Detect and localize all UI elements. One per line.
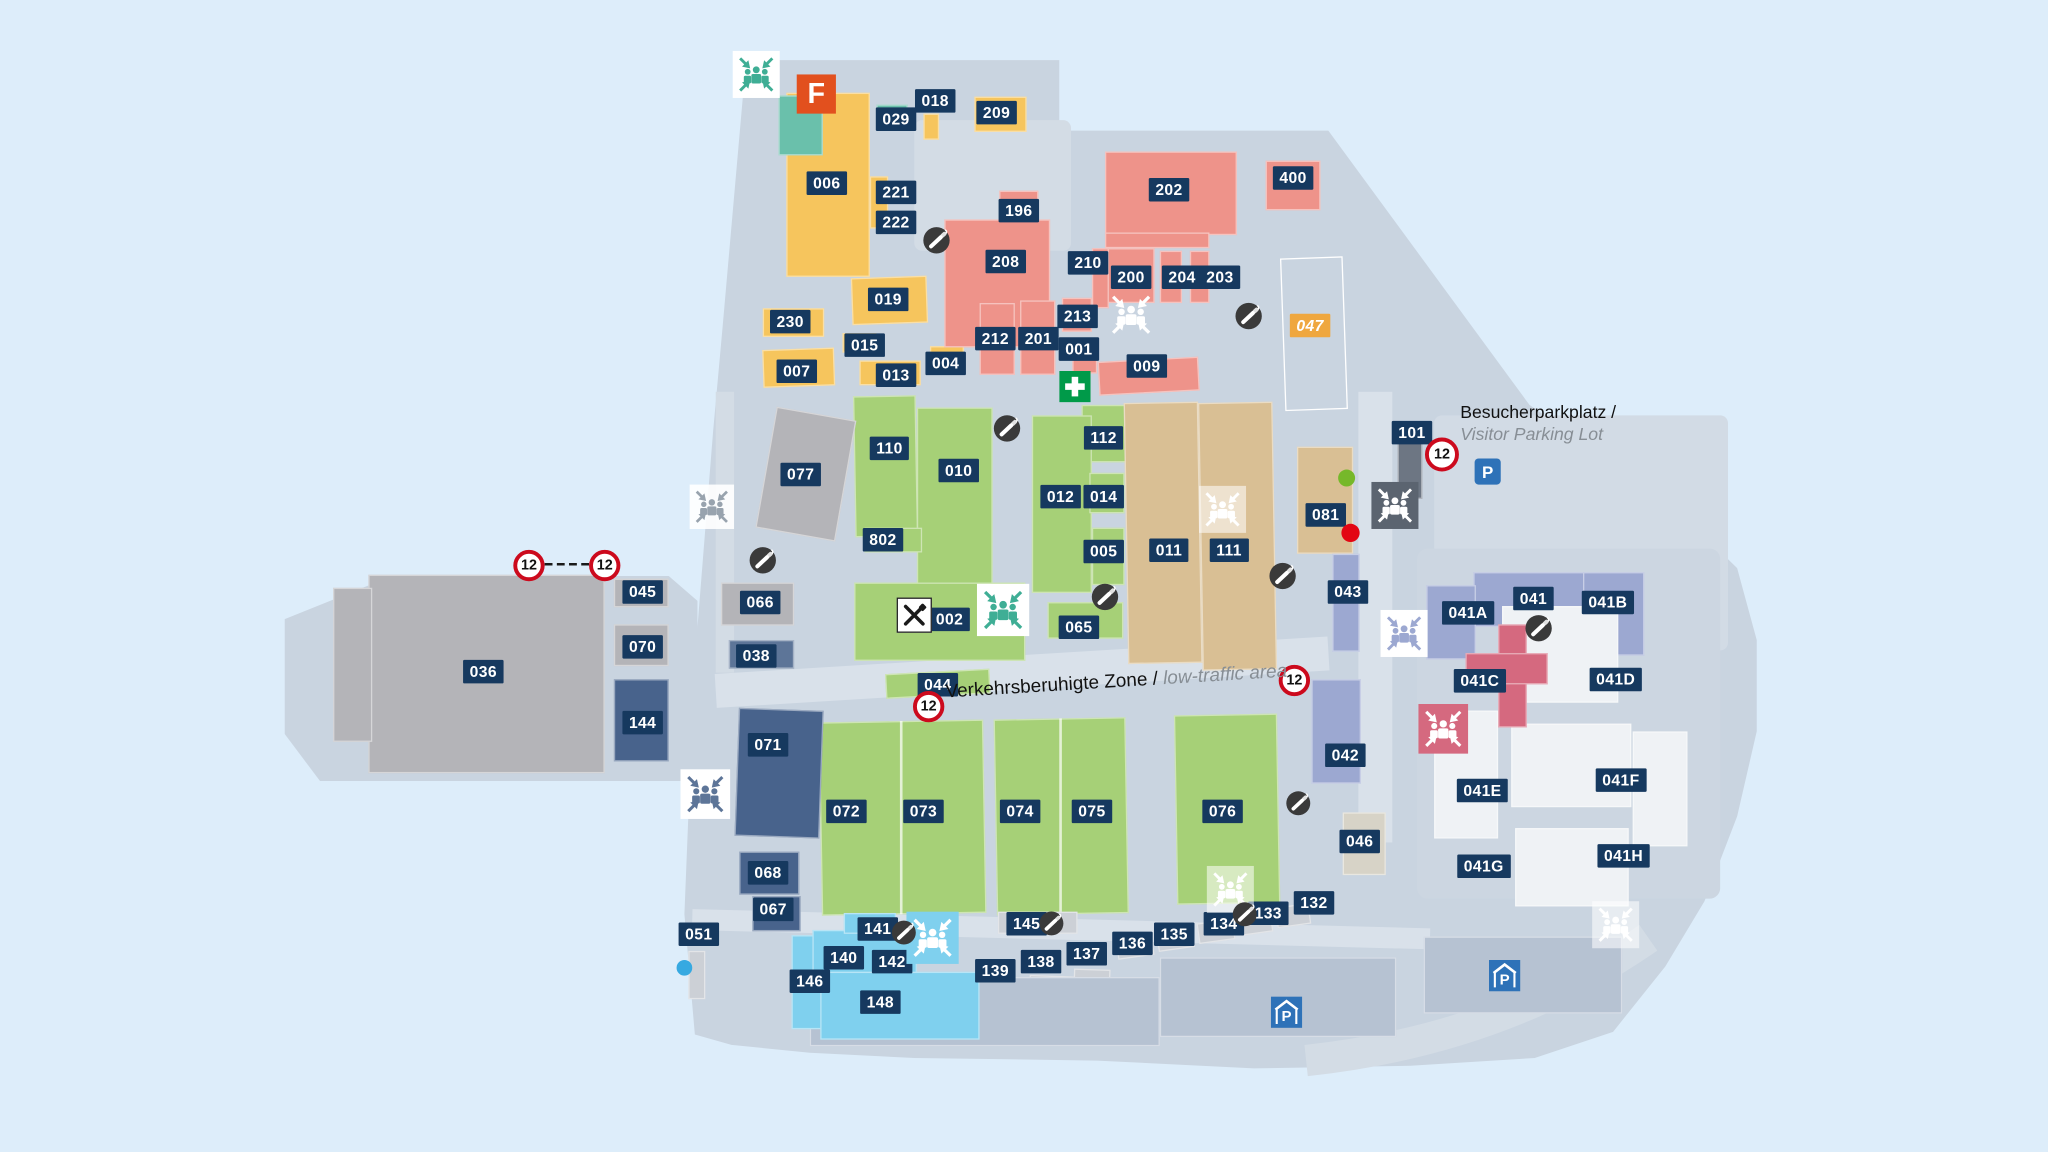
parking-garage-icon: P xyxy=(1489,960,1520,991)
smoking-area-icon xyxy=(1268,562,1297,591)
visitor-parking-annotation: Besucherparkplatz / Visitor Parking Lot xyxy=(1460,402,1616,446)
building-label-041H[interactable]: 041H xyxy=(1597,844,1649,867)
building-label-204[interactable]: 204 xyxy=(1162,265,1202,288)
building-label-802[interactable]: 802 xyxy=(863,528,903,551)
visitor-parking-text-de: Besucherparkplatz / xyxy=(1460,402,1616,424)
building-label-140[interactable]: 140 xyxy=(824,946,864,969)
map-building xyxy=(734,708,823,839)
building-label-075[interactable]: 075 xyxy=(1072,800,1112,823)
smoking-area-icon xyxy=(993,414,1022,443)
building-label-019[interactable]: 019 xyxy=(868,288,908,311)
meeting-point-icon xyxy=(690,485,734,529)
site-map-canvas[interactable]: 0060180292092212221962024002082102002042… xyxy=(0,0,2048,1152)
building-label-066[interactable]: 066 xyxy=(740,591,780,614)
building-label-213[interactable]: 213 xyxy=(1057,305,1097,328)
meeting-point-icon xyxy=(1381,610,1428,657)
building-label-013[interactable]: 013 xyxy=(876,363,916,386)
building-label-212[interactable]: 212 xyxy=(975,327,1015,350)
building-label-007[interactable]: 007 xyxy=(777,360,817,383)
meeting-point-icon xyxy=(733,51,780,98)
smoking-area-icon xyxy=(1234,302,1263,331)
building-label-009[interactable]: 009 xyxy=(1127,354,1167,377)
speed-limit-12-sign: 12 xyxy=(1425,438,1459,472)
building-label-041A[interactable]: 041A xyxy=(1442,601,1494,624)
building-label-041F[interactable]: 041F xyxy=(1596,768,1646,791)
building-label-065[interactable]: 065 xyxy=(1059,616,1099,639)
building-label-111[interactable]: 111 xyxy=(1210,538,1249,561)
green-marker-dot xyxy=(1338,470,1355,487)
building-label-208[interactable]: 208 xyxy=(986,250,1026,273)
svg-text:P: P xyxy=(1282,1008,1292,1025)
building-label-076[interactable]: 076 xyxy=(1202,800,1242,823)
building-label-210[interactable]: 210 xyxy=(1068,251,1108,274)
building-label-051[interactable]: 051 xyxy=(679,922,719,945)
map-building xyxy=(853,395,918,537)
building-label-015[interactable]: 015 xyxy=(844,333,884,356)
building-label-132[interactable]: 132 xyxy=(1294,891,1334,914)
smoking-area-icon xyxy=(1038,910,1064,936)
building-label-221[interactable]: 221 xyxy=(876,181,916,204)
blue-marker-dot xyxy=(677,960,693,976)
building-label-036[interactable]: 036 xyxy=(463,660,503,683)
building-label-018[interactable]: 018 xyxy=(915,89,955,112)
map-building xyxy=(917,408,993,586)
meeting-point-icon xyxy=(1592,901,1639,948)
building-label-196[interactable]: 196 xyxy=(999,199,1039,222)
building-label-203[interactable]: 203 xyxy=(1200,265,1240,288)
building-label-400[interactable]: 400 xyxy=(1273,166,1313,189)
building-label-074[interactable]: 074 xyxy=(1000,800,1040,823)
building-label-012[interactable]: 012 xyxy=(1040,485,1080,508)
parking-garage-icon: P xyxy=(1271,997,1302,1028)
building-label-002[interactable]: 002 xyxy=(929,608,969,631)
building-label-209[interactable]: 209 xyxy=(976,101,1016,124)
building-label-072[interactable]: 072 xyxy=(826,800,866,823)
speed-limit-12-sign: 12 xyxy=(589,550,620,581)
svg-text:P: P xyxy=(1500,971,1510,988)
visitor-parking-text-en: Visitor Parking Lot xyxy=(1460,424,1616,446)
building-label-041D[interactable]: 041D xyxy=(1590,668,1642,691)
building-label-146[interactable]: 146 xyxy=(790,969,830,992)
speed-limit-12-sign: 12 xyxy=(513,550,544,581)
building-label-071[interactable]: 071 xyxy=(748,733,788,756)
building-label-045[interactable]: 045 xyxy=(622,580,662,603)
building-label-014[interactable]: 014 xyxy=(1083,485,1123,508)
building-label-135[interactable]: 135 xyxy=(1154,922,1194,945)
smoking-area-icon xyxy=(891,920,917,946)
building-label-068[interactable]: 068 xyxy=(748,861,788,884)
building-label-230[interactable]: 230 xyxy=(770,310,810,333)
building-label-005[interactable]: 005 xyxy=(1083,540,1123,563)
meeting-point-icon xyxy=(1371,482,1418,529)
building-label-004[interactable]: 004 xyxy=(925,352,965,375)
map-building xyxy=(1511,724,1631,808)
map-building xyxy=(688,951,705,999)
parking-sign-icon: P xyxy=(1475,458,1501,484)
building-label-011[interactable]: 011 xyxy=(1149,538,1189,561)
map-building xyxy=(1311,679,1361,783)
building-label-148[interactable]: 148 xyxy=(860,990,900,1013)
smoking-area-icon xyxy=(1285,790,1311,816)
building-label-067[interactable]: 067 xyxy=(753,898,793,921)
map-building xyxy=(900,721,903,914)
map-building xyxy=(1124,402,1203,664)
building-label-038[interactable]: 038 xyxy=(736,644,776,667)
building-label-110[interactable]: 110 xyxy=(870,437,910,460)
building-label-043[interactable]: 043 xyxy=(1328,580,1368,603)
building-label-041[interactable]: 041 xyxy=(1513,587,1553,610)
building-label-144[interactable]: 144 xyxy=(622,711,662,734)
building-label-077[interactable]: 077 xyxy=(780,463,820,486)
building-label-029[interactable]: 029 xyxy=(876,107,916,130)
building-label-041B[interactable]: 041B xyxy=(1582,591,1634,614)
site-logo: F xyxy=(797,74,836,113)
smoking-area-icon xyxy=(1232,901,1258,927)
dashed-connector-line xyxy=(545,563,589,566)
map-building xyxy=(1105,232,1209,248)
building-label-041G[interactable]: 041G xyxy=(1457,855,1510,878)
building-label-041C[interactable]: 041C xyxy=(1454,669,1506,692)
building-label-010[interactable]: 010 xyxy=(938,459,978,482)
smoking-area-icon xyxy=(1091,583,1120,612)
building-label-138[interactable]: 138 xyxy=(1021,950,1061,973)
meeting-point-icon xyxy=(977,584,1029,636)
building-label-202[interactable]: 202 xyxy=(1149,178,1189,201)
building-label-200[interactable]: 200 xyxy=(1111,265,1151,288)
meeting-point-icon xyxy=(1199,486,1246,533)
building-label-073[interactable]: 073 xyxy=(903,800,943,823)
building-label-041E[interactable]: 041E xyxy=(1457,779,1508,802)
restaurant-icon xyxy=(897,598,932,633)
building-label-006[interactable]: 006 xyxy=(807,171,847,194)
building-label-112[interactable]: 112 xyxy=(1084,426,1124,449)
smoking-area-icon xyxy=(748,546,777,575)
map-building xyxy=(1198,402,1277,671)
building-label-101[interactable]: 101 xyxy=(1392,421,1432,444)
meeting-point-icon xyxy=(1105,289,1157,341)
map-building xyxy=(1059,718,1062,914)
meeting-point-icon xyxy=(1418,704,1468,754)
speed-limit-12-sign: 12 xyxy=(913,691,944,722)
building-label-081[interactable]: 081 xyxy=(1306,503,1346,526)
map-building xyxy=(923,114,939,140)
building-label-046[interactable]: 046 xyxy=(1339,830,1379,853)
building-label-042[interactable]: 042 xyxy=(1325,744,1365,767)
building-label-139[interactable]: 139 xyxy=(975,959,1015,982)
building-label-070[interactable]: 070 xyxy=(622,635,662,658)
map-viewport: 0060180292092212221962024002082102002042… xyxy=(0,0,2048,1152)
map-building xyxy=(333,588,372,742)
building-label-001[interactable]: 001 xyxy=(1059,337,1099,360)
building-label-201[interactable]: 201 xyxy=(1018,327,1058,350)
first-aid-icon xyxy=(1059,371,1090,402)
building-label-047[interactable]: 047 xyxy=(1290,314,1330,337)
map-building xyxy=(1515,828,1629,906)
building-label-222[interactable]: 222 xyxy=(876,211,916,234)
red-marker-dot xyxy=(1341,524,1359,542)
smoking-area-icon xyxy=(922,226,951,255)
meeting-point-icon xyxy=(680,769,730,819)
smoking-area-icon xyxy=(1524,614,1553,643)
building-label-136[interactable]: 136 xyxy=(1112,932,1152,955)
building-label-137[interactable]: 137 xyxy=(1066,942,1106,965)
